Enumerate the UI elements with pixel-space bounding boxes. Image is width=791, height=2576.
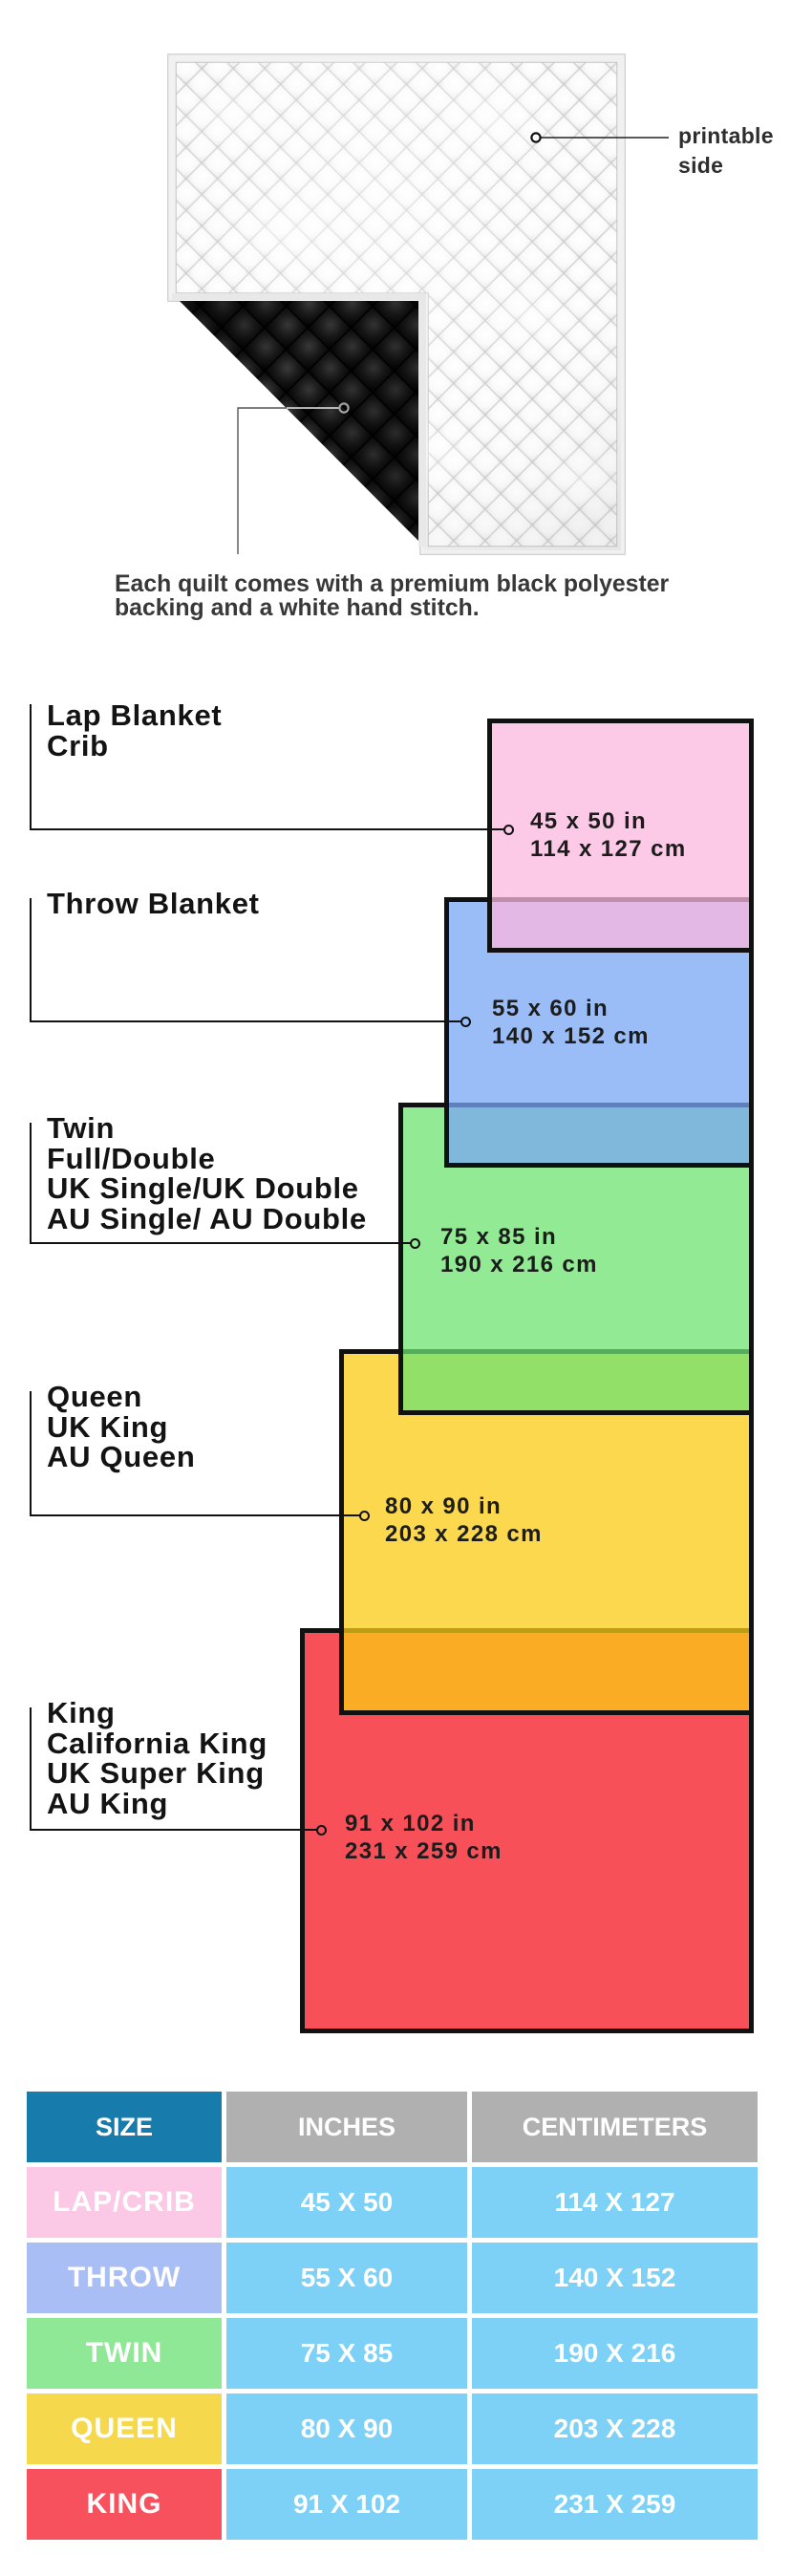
svg-text:backing and a white hand stitc: backing and a white hand stitch. [115, 595, 480, 621]
svg-text:Each quilt comes with a premiu: Each quilt comes with a premium black po… [115, 571, 669, 597]
svg-text:printable: printable [678, 123, 774, 148]
svg-text:side: side [678, 153, 723, 178]
